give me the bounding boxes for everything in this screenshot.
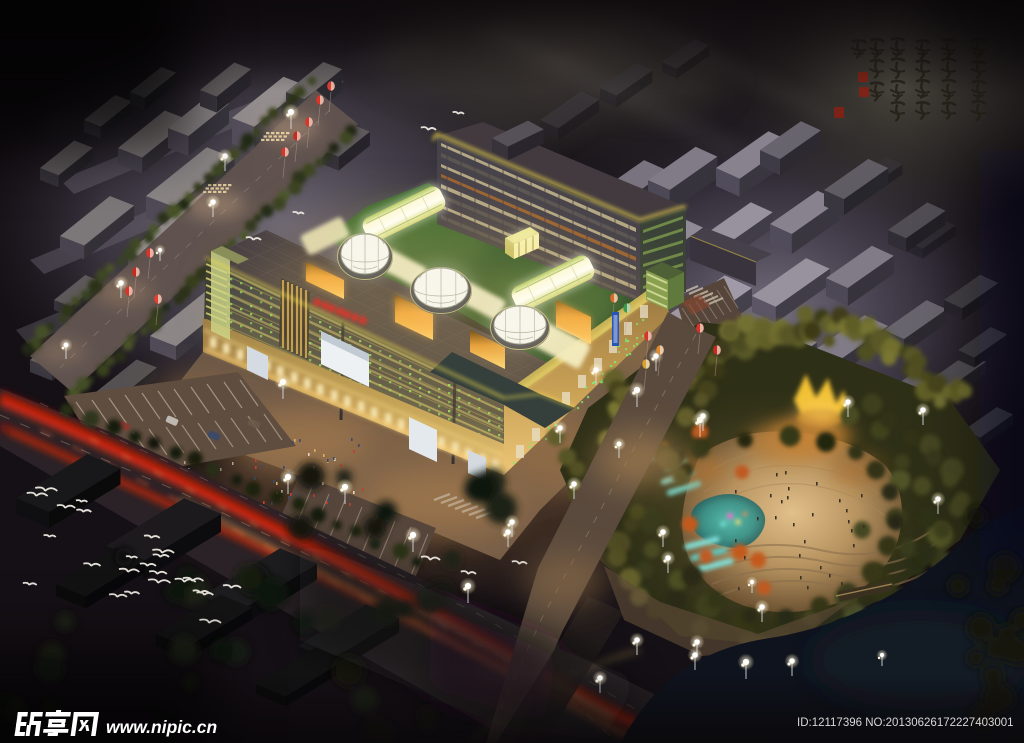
svg-text:www.nipic.cn: www.nipic.cn <box>106 717 217 737</box>
svg-text:ID:12117396 NO:201306261722274: ID:12117396 NO:20130626172227403001 <box>797 717 1014 729</box>
